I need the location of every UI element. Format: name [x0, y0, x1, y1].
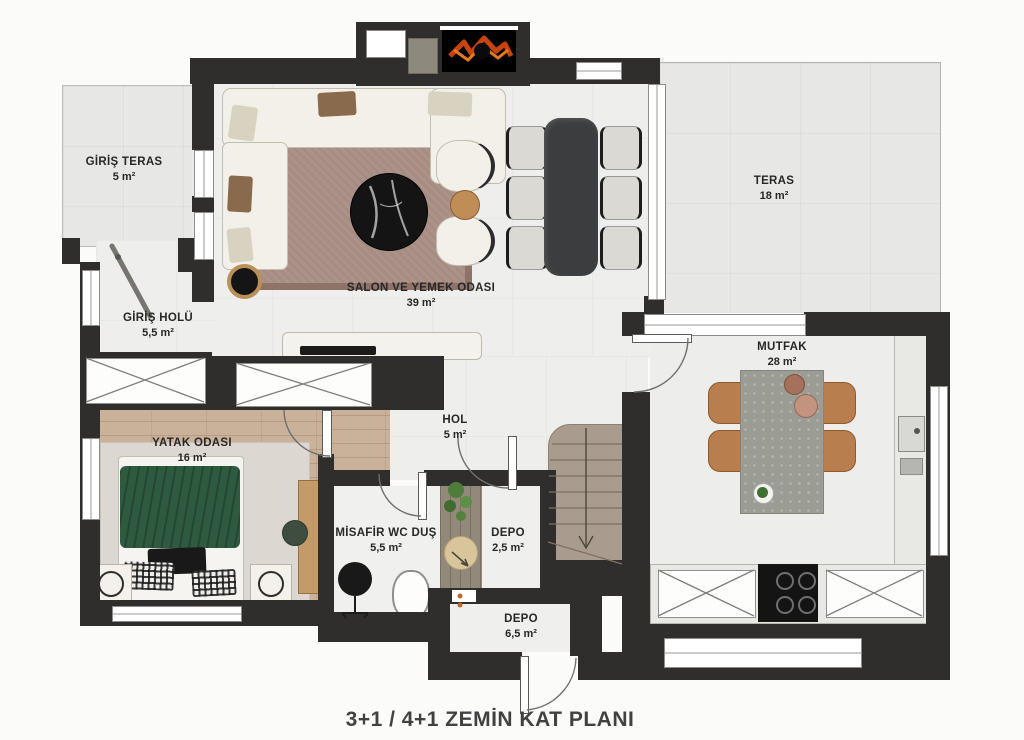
room-name: DEPO	[504, 612, 538, 627]
room-label-yatak-odasi: YATAK ODASI 16 m²	[152, 436, 232, 465]
room-label-depo-large: DEPO 6,5 m²	[504, 612, 538, 641]
room-label-giris-teras: GİRİŞ TERAS 5 m²	[86, 155, 163, 184]
room-name: GİRİŞ HOLÜ	[123, 311, 193, 326]
room-label-misafir-wc: MİSAFİR WC DUŞ 5,5 m²	[335, 526, 436, 555]
room-label-depo-small: DEPO 2,5 m²	[491, 526, 525, 555]
room-name: MİSAFİR WC DUŞ	[335, 526, 436, 541]
room-name: MUTFAK	[757, 340, 807, 355]
room-area: 18 m²	[754, 189, 794, 203]
floor-plan: GİRİŞ TERAS 5 m² GİRİŞ HOLÜ 5,5 m² SALON…	[0, 0, 1024, 740]
stair-direction-arrow	[579, 428, 593, 548]
room-area: 5 m²	[442, 428, 467, 442]
planter-plants	[444, 482, 472, 608]
room-area: 28 m²	[757, 355, 807, 369]
room-area: 39 m²	[347, 296, 495, 310]
room-name: TERAS	[754, 174, 794, 189]
room-name: HOL	[442, 413, 467, 428]
room-label-teras: TERAS 18 m²	[754, 174, 794, 203]
room-area: 6,5 m²	[504, 627, 538, 641]
entrance-door	[112, 246, 150, 316]
washbasin-stand	[342, 596, 368, 618]
fire-icon	[450, 38, 511, 60]
marble-veins	[370, 180, 408, 238]
room-label-hol: HOL 5 m²	[442, 413, 467, 442]
room-name: SALON VE YEMEK ODASI	[347, 281, 495, 296]
plan-title: 3+1 / 4+1 ZEMİN KAT PLANI	[346, 708, 635, 732]
room-label-mutfak: MUTFAK 28 m²	[757, 340, 807, 369]
room-name: YATAK ODASI	[152, 436, 232, 451]
door-arcs	[284, 338, 688, 710]
room-area: 5,5 m²	[335, 541, 436, 555]
room-name: GİRİŞ TERAS	[86, 155, 163, 170]
room-area: 16 m²	[152, 451, 232, 465]
room-area: 2,5 m²	[491, 541, 525, 555]
room-area: 5,5 m²	[123, 326, 193, 340]
room-area: 5 m²	[86, 170, 163, 184]
wardrobe-x-lines	[86, 358, 922, 616]
room-label-salon: SALON VE YEMEK ODASI 39 m²	[347, 281, 495, 310]
room-label-giris-holu: GİRİŞ HOLÜ 5,5 m²	[123, 311, 193, 340]
room-name: DEPO	[491, 526, 525, 541]
